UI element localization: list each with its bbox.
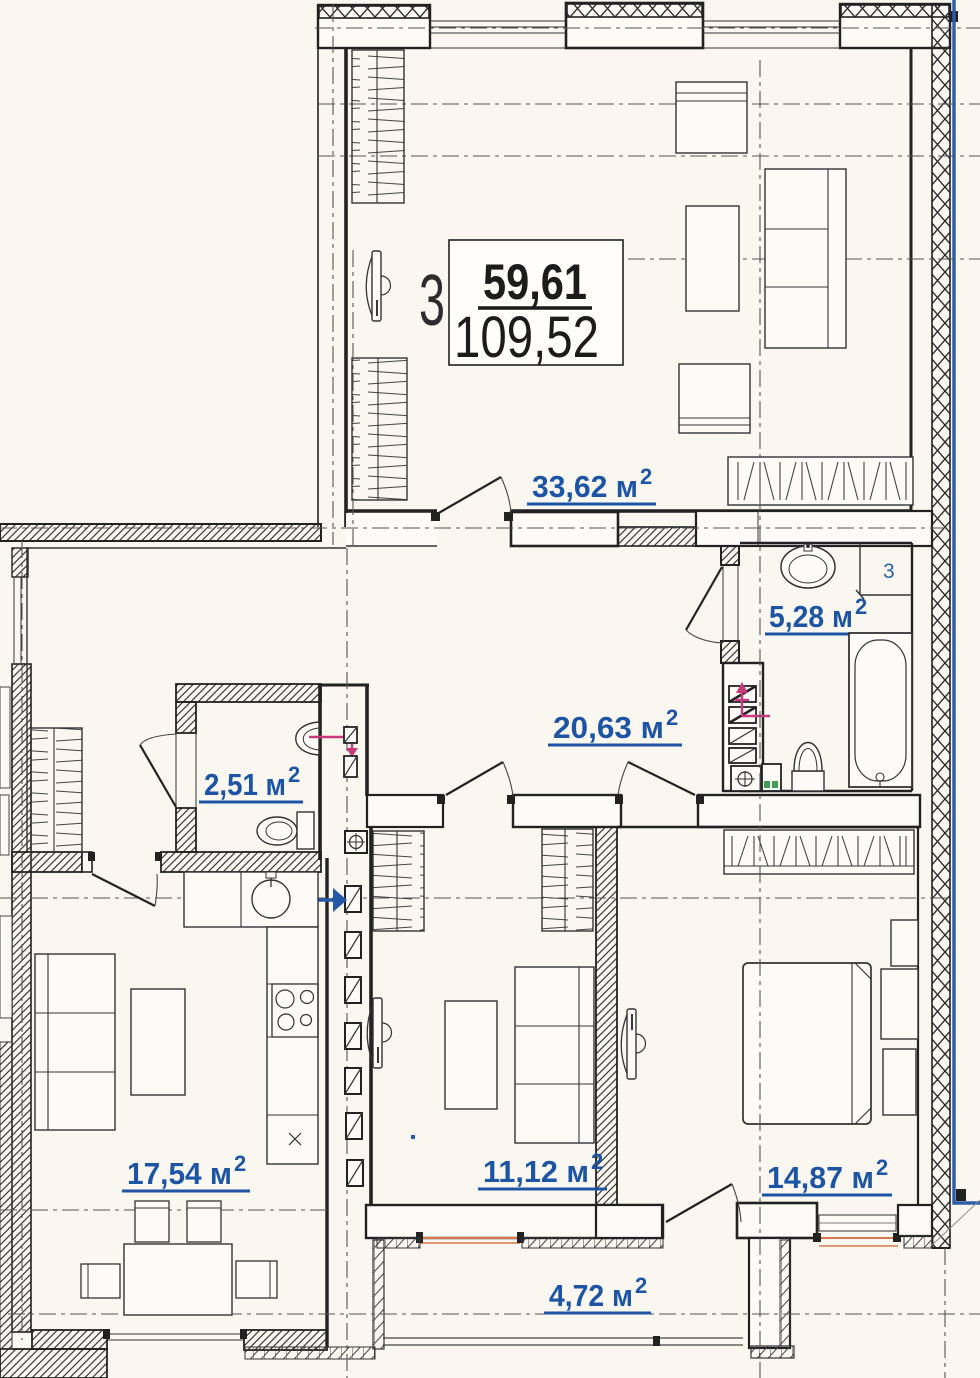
- svg-text:33,62 м: 33,62 м: [532, 469, 638, 504]
- svg-text:2: 2: [234, 1151, 246, 1176]
- svg-text:2: 2: [288, 762, 300, 787]
- svg-text:2,51 м: 2,51 м: [204, 767, 286, 802]
- svg-text:2: 2: [876, 1155, 888, 1180]
- svg-text:20,63 м: 20,63 м: [553, 710, 664, 745]
- svg-text:109,52: 109,52: [454, 305, 599, 370]
- svg-text:3: 3: [419, 261, 445, 341]
- svg-text:2: 2: [591, 1149, 603, 1174]
- svg-text:2: 2: [666, 705, 678, 730]
- svg-text:2: 2: [855, 594, 867, 619]
- svg-text:11,12 м: 11,12 м: [483, 1154, 589, 1189]
- svg-text:17,54 м: 17,54 м: [127, 1156, 232, 1191]
- svg-text:2: 2: [640, 464, 652, 489]
- svg-text:5,28 м: 5,28 м: [769, 599, 853, 634]
- svg-text:2: 2: [635, 1273, 647, 1298]
- svg-text:3: 3: [883, 560, 895, 583]
- svg-text:59,61: 59,61: [483, 254, 587, 310]
- svg-text:4,72 м: 4,72 м: [549, 1278, 633, 1313]
- svg-text:14,87 м: 14,87 м: [767, 1160, 874, 1195]
